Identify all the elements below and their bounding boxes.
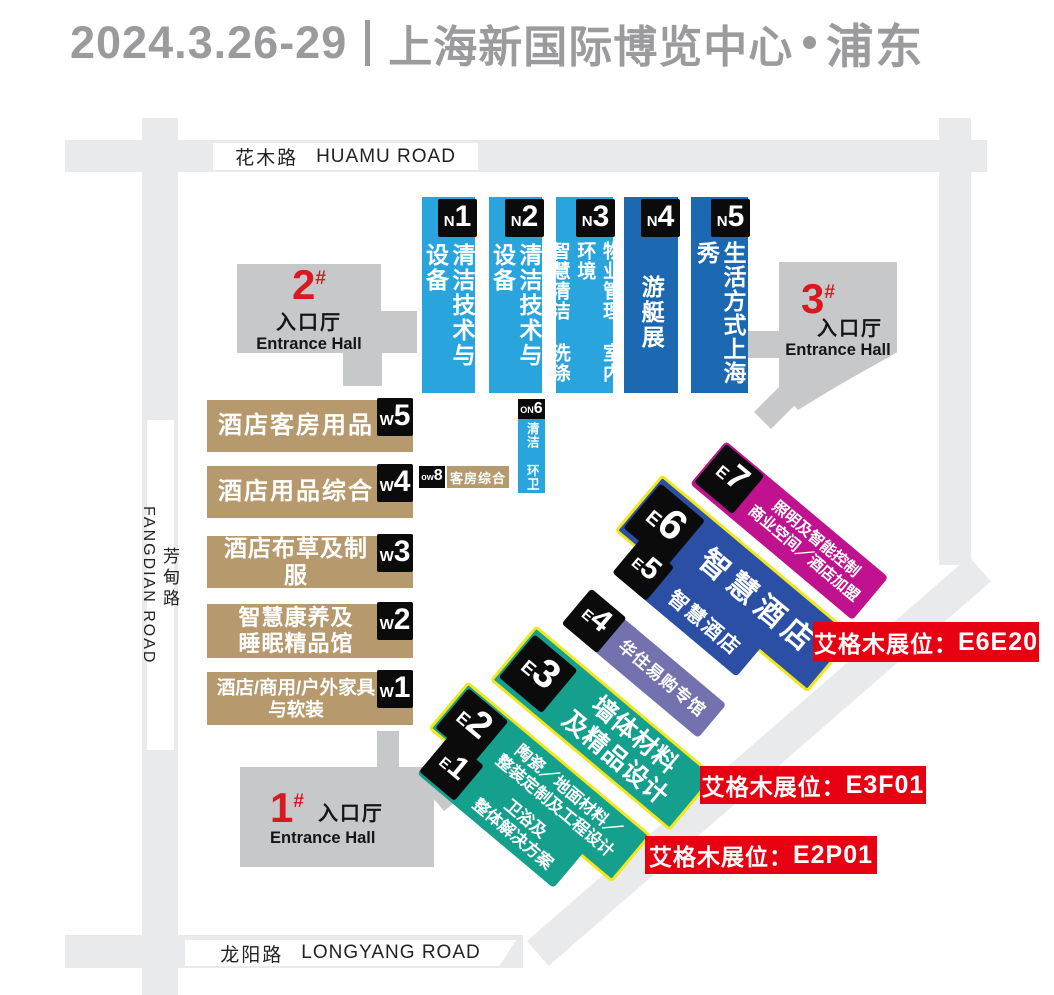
entrance-1-zh: 入口厅 [318, 797, 384, 826]
badge-booth: E2P01 [793, 841, 873, 870]
badge-booth: E3F01 [846, 771, 925, 800]
hall-w3: W3 酒店布草及制服 [207, 536, 413, 588]
hall-w4: W4 酒店用品综合 [207, 466, 413, 518]
entrance-2-number: 2# [292, 264, 326, 306]
booth-badge-e6e20: 艾格木展位：E6E20 [813, 622, 1039, 662]
road-huamu-zh: 花木路 [235, 143, 298, 170]
road-label-longyang: 龙阳路 LONGYANG ROAD [185, 940, 516, 966]
hall-n3: N3 物业管理 室内环境 智慧清洁 洗涤 [556, 197, 613, 393]
expo-floor-map: 2024.3.26-29 上海新国际博览中心 浦东 花木路 HUAMU ROAD… [0, 0, 1054, 995]
hall-w2-label: 智慧康养及 睡眠精品馆 [238, 605, 353, 657]
hall-on6-label: 清洁 环卫 [524, 422, 538, 491]
hall-on6: ON6 清洁 环卫 [518, 399, 545, 493]
entrance-1-en: Entrance Hall [270, 829, 434, 848]
entrance-2-en: Entrance Hall [256, 335, 361, 354]
booth-badge-e3f01: 艾格木展位：E3F01 [700, 766, 926, 804]
entrance-1-line1: 1# 入口厅 [270, 787, 434, 829]
entrance-hall-1: 1# 入口厅 Entrance Hall [240, 767, 434, 867]
hall-n5-label: 生活方式上海秀 [693, 241, 746, 389]
entrance-hall-2: 2# 入口厅 Entrance Hall [237, 264, 381, 353]
hall-w3-tag: W3 [377, 534, 413, 572]
hall-n2: N2 清洁技术与设备 [489, 197, 542, 393]
hall-n4-label: 游艇展 [638, 275, 664, 350]
hall-n1-label: 清洁技术与设备 [422, 243, 475, 387]
venue-name: 上海新国际博览中心 [388, 11, 793, 75]
hall-n2-tag: N2 [505, 199, 544, 237]
event-dates: 2024.3.26-29 [70, 17, 347, 69]
hall-ow8-tag: ow8 [419, 466, 445, 488]
hall-ow8-label: 客房综合 [447, 466, 509, 488]
hall-on6-tag: ON6 [518, 399, 545, 419]
road-label-huamu: 花木路 HUAMU ROAD [213, 143, 478, 170]
road-label-fangdian: 芳甸路 FANGDIAN ROAD [147, 420, 174, 750]
hall-w5-label: 酒店客房用品 [218, 412, 374, 440]
hall-w3-label: 酒店布草及制服 [215, 535, 377, 589]
badge-booth: E6E20 [958, 628, 1038, 657]
entrance-2-stub [343, 353, 382, 386]
badge-label: 艾格木展位： [702, 768, 846, 802]
hall-w2-tag: W2 [377, 602, 413, 640]
road-right-vertical [939, 118, 971, 565]
hall-on6-bar: 清洁 环卫 [518, 419, 545, 493]
hall-n5-tag: N5 [711, 199, 750, 237]
hall-w1-tag: W1 [377, 670, 413, 708]
hall-n4-tag: N4 [641, 199, 680, 237]
title-bullet-icon [803, 36, 816, 49]
entrance-1-stub [377, 731, 399, 768]
hall-n1-tag: N1 [438, 199, 477, 237]
road-fangdian-en: FANGDIAN ROAD [139, 506, 157, 664]
title-divider [365, 20, 370, 66]
road-longyang-zh: 龙阳路 [220, 940, 283, 967]
hall-w1: W1 酒店/商用/户外家具 与软装 [207, 672, 413, 725]
entrance-3-en: Entrance Hall [785, 341, 890, 360]
hall-n1: N1 清洁技术与设备 [422, 197, 475, 393]
entrance-hall-3: 3# 入口厅 Entrance Hall [779, 262, 897, 410]
hall-n5: N5 生活方式上海秀 [691, 197, 748, 393]
road-fangdian-zh: 芳甸路 [157, 547, 182, 610]
district-name: 浦东 [826, 8, 924, 77]
road-longyang-en: LONGYANG ROAD [301, 942, 480, 964]
hall-w1-label: 酒店/商用/户外家具 与软装 [217, 677, 375, 721]
hall-w2: W2 智慧康养及 睡眠精品馆 [207, 604, 413, 658]
hall-ow8: ow8 客房综合 [419, 466, 509, 488]
entrance-2-zh: 入口厅 [276, 306, 342, 335]
hall-w5-tag: W5 [377, 398, 413, 436]
entrance-1-number: 1# [270, 787, 304, 829]
hall-w5: W5 酒店客房用品 [207, 400, 413, 452]
hall-n2-label: 清洁技术与设备 [489, 243, 542, 387]
hall-w4-tag: W4 [377, 464, 413, 502]
entrance-2-arm [381, 311, 417, 353]
hall-w4-label: 酒店用品综合 [218, 478, 374, 506]
hall-n3-label: 物业管理 室内环境 智慧清洁 洗涤 [546, 241, 623, 387]
hall-n4: N4 游艇展 [624, 197, 678, 393]
badge-label: 艾格木展位： [814, 625, 958, 659]
road-huamu-en: HUAMU ROAD [316, 146, 456, 168]
entrance-3-zh: 入口厅 [817, 312, 883, 341]
page-title: 2024.3.26-29 上海新国际博览中心 浦东 [70, 8, 924, 77]
badge-label: 艾格木展位： [649, 838, 793, 872]
booth-badge-e2p01: 艾格木展位：E2P01 [645, 836, 877, 874]
hall-n3-tag: N3 [576, 199, 615, 237]
road-huamu [65, 140, 987, 172]
